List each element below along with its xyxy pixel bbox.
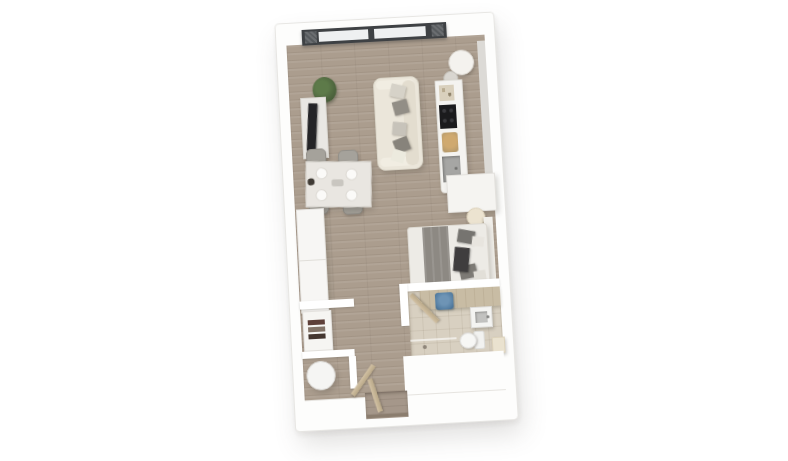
- faucet: [486, 315, 489, 318]
- window-glass-pane: [374, 26, 426, 39]
- tableware: [316, 167, 328, 179]
- window-mesh-panel: [305, 31, 318, 43]
- faucet: [454, 167, 457, 170]
- burner: [443, 119, 447, 123]
- blue-laundry-basket: [435, 292, 454, 310]
- folded-towels: [308, 326, 325, 332]
- tableware: [316, 189, 328, 201]
- burner: [449, 108, 453, 112]
- window-glass-pane: [318, 29, 368, 42]
- tall-cabinet: [446, 173, 497, 213]
- folded-towels: [308, 333, 325, 339]
- wall-mass: [403, 351, 506, 395]
- cooktop: [439, 104, 457, 129]
- burner: [442, 109, 446, 113]
- table-centerpiece: [332, 179, 344, 186]
- floor-plan: [275, 13, 517, 432]
- bread-basket: [442, 132, 459, 153]
- television: [307, 103, 318, 151]
- washbasin: [470, 306, 493, 328]
- shelf-unit: [302, 310, 333, 352]
- table-decor: [308, 178, 315, 185]
- canvas-background: [0, 0, 788, 461]
- throw-pillow: [389, 83, 406, 99]
- dining-table: [306, 161, 372, 207]
- bed-pillow: [472, 236, 485, 247]
- wardrobe: [296, 208, 329, 314]
- toilet: [459, 330, 484, 349]
- wardrobe-seam: [300, 259, 326, 261]
- throw-pillow: [392, 122, 407, 136]
- folded-towels: [308, 319, 325, 325]
- tableware: [346, 168, 358, 180]
- counter-clutter: [439, 85, 455, 102]
- burner: [450, 118, 454, 122]
- folded-clothes: [453, 247, 470, 272]
- tableware: [346, 189, 358, 201]
- window-mesh-panel: [431, 24, 444, 36]
